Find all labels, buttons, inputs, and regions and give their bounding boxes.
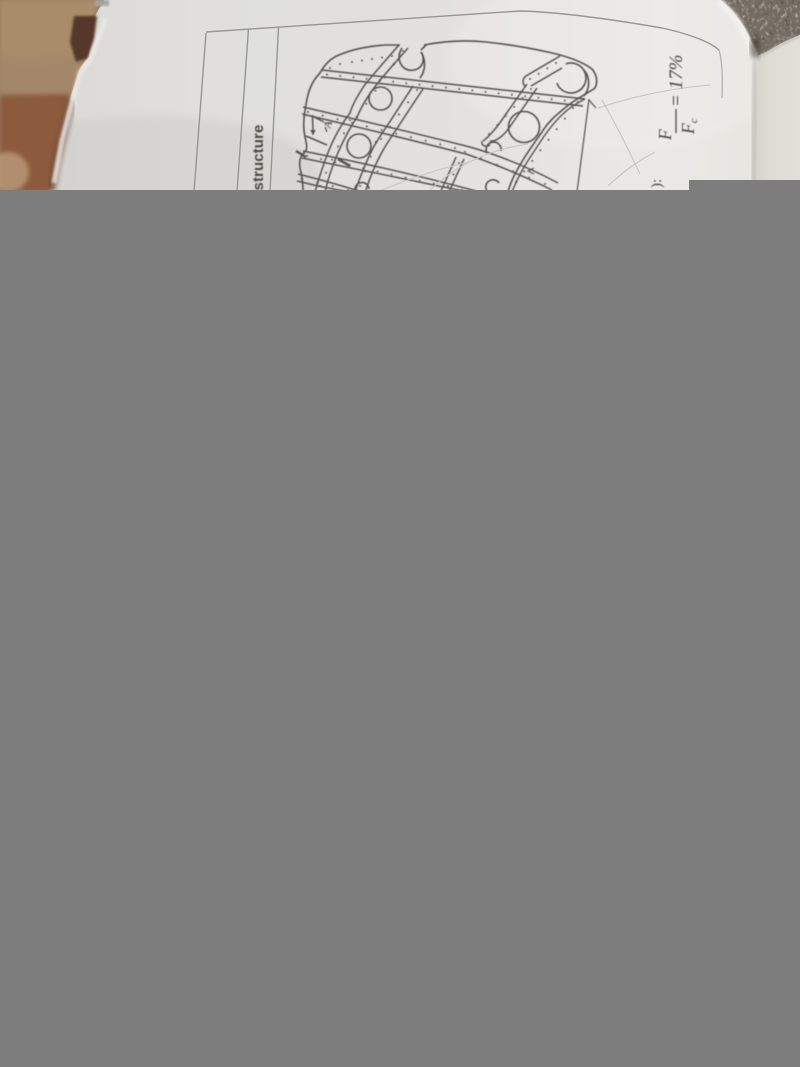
- svg-text:):: ):: [649, 179, 665, 188]
- svg-text:F: F: [655, 129, 675, 141]
- svg-text:structure: structure: [250, 125, 267, 191]
- svg-text:= 17%: = 17%: [666, 55, 687, 107]
